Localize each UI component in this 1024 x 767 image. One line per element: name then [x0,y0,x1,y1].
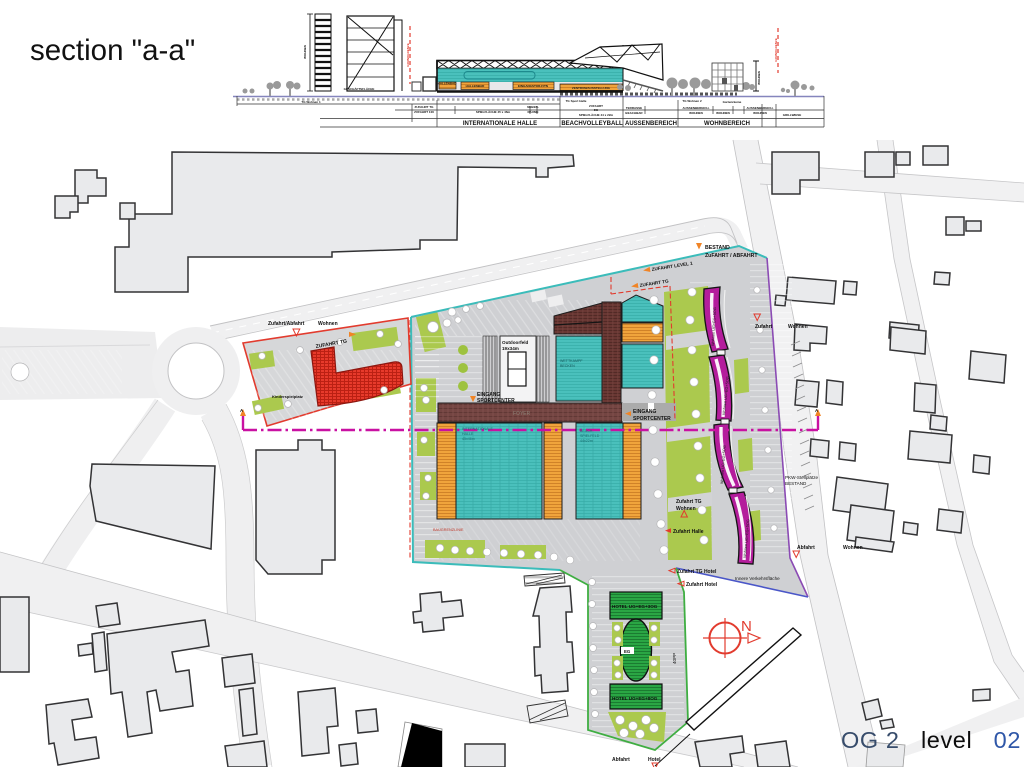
svg-text:FOYER: FOYER [513,411,531,417]
svg-text:EG: EG [624,649,631,654]
svg-text:Abfahrt: Abfahrt [612,757,630,763]
svg-text:BEACHVOLLEYBALL: BEACHVOLLEYBALL [561,121,623,127]
svg-text:Wohnen: Wohnen [318,321,338,327]
svg-text:WOHNBEREICH: WOHNBEREICH [704,121,750,127]
svg-text:HOTEL UG+EG+8OG: HOTEL UG+EG+8OG [612,696,658,701]
svg-text:Zufahrt Hotel: Zufahrt Hotel [686,582,718,588]
svg-text:SPIELFLÄCHE 44 x 22m: SPIELFLÄCHE 44 x 22m [579,113,614,117]
svg-text:INTERNATIONALE HALLE: INTERNATIONALE HALLE [463,121,537,127]
svg-text:HALLENBAD: HALLENBAD [438,82,457,86]
svg-text:WOHNEN: WOHNEN [753,111,767,115]
svg-text:Zufahrt TG Hotel: Zufahrt TG Hotel [677,569,717,575]
svg-text:HALLE: HALLE [462,432,474,436]
svg-text:SPORTCENTER: SPORTCENTER [633,416,671,422]
svg-text:Wohnen: Wohnen [843,545,863,551]
svg-text:HALLENBAD: HALLENBAD [466,84,485,88]
svg-text:ZUFAHRT TG: ZUFAHRT TG [415,105,435,109]
svg-text:WOHNEN: WOHNEN [689,111,703,115]
svg-text:Abfahrt: Abfahrt [797,545,815,551]
svg-text:Zufahrt Halle: Zufahrt Halle [673,529,704,535]
svg-text:BESTAND: BESTAND [785,481,807,486]
svg-text:TERRASSE: TERRASSE [626,106,642,110]
svg-text:GRILLWIESE: GRILLWIESE [783,113,802,117]
svg-text:19x34m: 19x34m [502,346,519,351]
svg-text:BECKEN: BECKEN [560,364,575,368]
svg-text:HOTEL UG+EG+3OG: HOTEL UG+EG+3OG [612,604,658,609]
svg-text:SPIELFLÄCHE 45 x 46m: SPIELFLÄCHE 45 x 46m [476,110,511,114]
svg-text:BEACH: BEACH [580,429,593,433]
svg-text:WOHNEN: WOHNEN [716,111,730,115]
svg-text:BAUGRENZLINIE: BAUGRENZLINIE [433,528,464,532]
svg-text:BESTAND: BESTAND [705,245,730,251]
svg-text:AUSSENBEREICH-: AUSSENBEREICH- [746,106,773,110]
svg-text:EG: EG [594,108,599,112]
svg-text:ZUFAHRT 100: ZUFAHRT 100 [414,110,434,114]
svg-text:SPIELFELD: SPIELFELD [580,434,600,438]
svg-text:TG Wohnen 2: TG Wohnen 2 [682,99,702,103]
svg-text:EINGANG: EINGANG [633,409,656,415]
svg-text:EINGANGSTOR-FITN: EINGANGSTOR-FITN [518,84,548,88]
svg-text:WETTKAMPF: WETTKAMPF [560,359,583,363]
svg-text:BEACHBAR: BEACHBAR [625,111,643,115]
svg-text:ZENTRUM/AUSSTELLUNG: ZENTRUM/AUSSTELLUNG [572,86,611,90]
svg-text:PKW-Stellplätze: PKW-Stellplätze [785,475,819,480]
svg-text:WOHNEN: WOHNEN [757,71,761,85]
svg-text:RÄUME: RÄUME [528,110,539,114]
svg-text:section "a-a": section "a-a" [30,34,195,67]
svg-text:NEBEN-: NEBEN- [527,105,539,109]
svg-text:40PP: 40PP [672,653,677,664]
svg-text:AUSSENBEREICH: AUSSENBEREICH [625,121,677,127]
svg-text:Zufahrt TG: Zufahrt TG [676,499,702,505]
svg-text:WOHNEN: WOHNEN [303,45,307,59]
svg-text:Wohnen: Wohnen [788,324,808,330]
svg-text:Kinderspielplatz: Kinderspielplatz [272,394,303,399]
svg-text:TG Sport Halle: TG Sport Halle [566,99,587,103]
svg-text:OG 2 level 02: OG 2 level 02 [841,727,1021,753]
svg-text:GRUNDGRENZE: GRUNDGRENZE [406,43,410,67]
svg-text:44x22m: 44x22m [580,439,593,443]
svg-text:45x46m: 45x46m [462,437,475,441]
svg-text:TG Wohnen 1: TG Wohnen 1 [301,100,321,104]
svg-text:Gartenräume: Gartenräume [723,100,742,104]
svg-text:GESCHÄFTSFLÄCHE: GESCHÄFTSFLÄCHE [344,87,375,91]
svg-text:Innere Verkehrsfläche: Innere Verkehrsfläche [735,576,780,581]
svg-text:Hotel: Hotel [648,757,661,763]
svg-text:SPORTCENTER: SPORTCENTER [477,398,515,404]
svg-text:N: N [741,618,752,635]
svg-text:GRUNDGRENZE: GRUNDGRENZE [774,38,778,62]
svg-text:INTERNATIONALE: INTERNATIONALE [462,427,493,431]
svg-text:ZuFAHRT / ABFAHRT: ZuFAHRT / ABFAHRT [705,253,758,259]
svg-text:Zufahrt/Abfahrt: Zufahrt/Abfahrt [268,321,305,327]
svg-text:AUSSENBEREICH-: AUSSENBEREICH- [682,106,709,110]
svg-text:Outdoorfeld: Outdoorfeld [502,340,528,345]
svg-text:Zufahrt: Zufahrt [755,324,773,330]
svg-text:Wohnen: Wohnen [676,506,696,512]
